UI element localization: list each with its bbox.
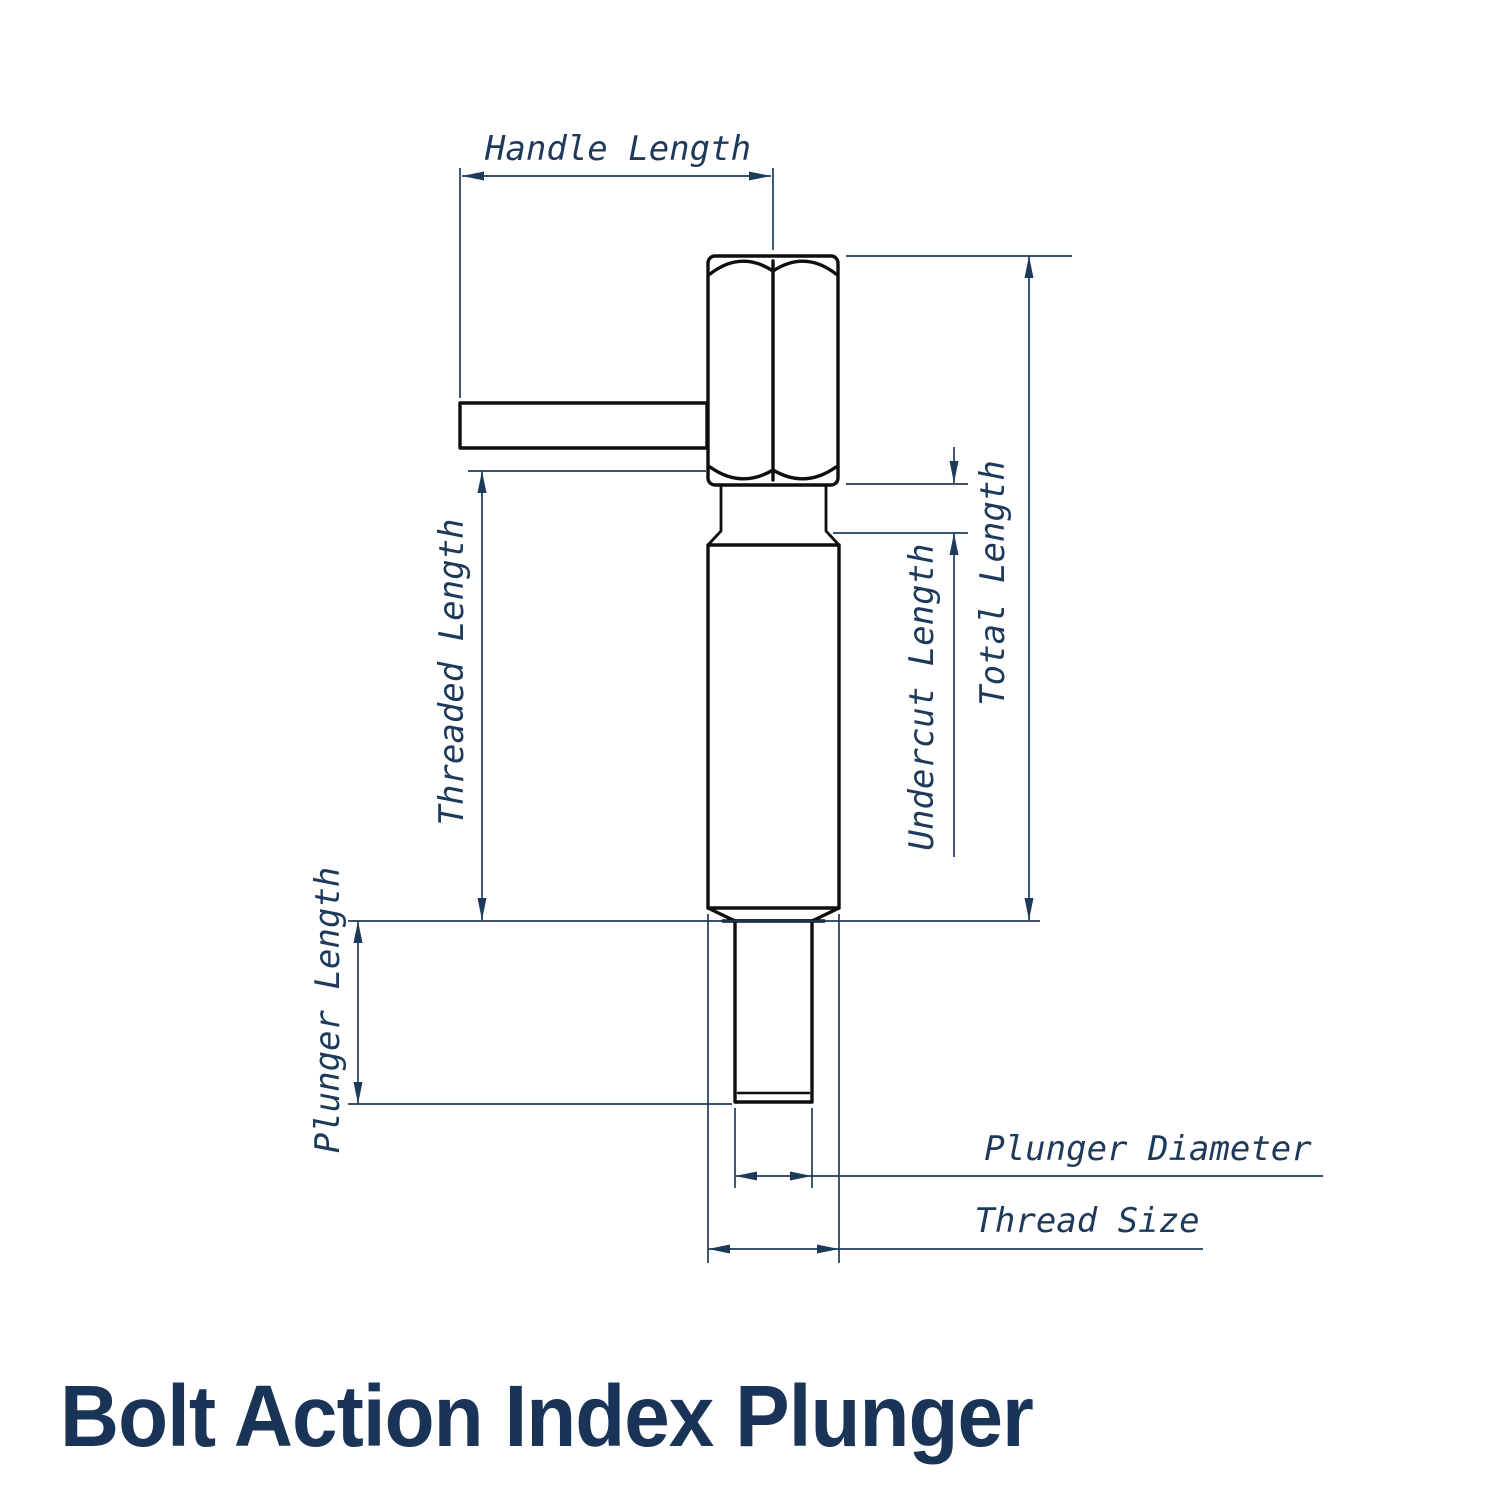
plunger-diameter-label: Plunger Diameter <box>984 1129 1312 1169</box>
arrowhead-down-icon <box>950 461 959 483</box>
drawing-canvas: Handle Length Threaded Length Plunger Le… <box>0 0 1500 1500</box>
handle-bar <box>460 403 707 448</box>
arrowhead-right-icon <box>817 1245 839 1254</box>
index-plunger-technical-drawing: Handle Length Threaded Length Plunger Le… <box>0 0 1500 1500</box>
plunger-pin <box>735 921 812 1102</box>
threaded-length-label: Threaded Length <box>432 518 472 825</box>
arrowhead-right-icon <box>790 1172 812 1181</box>
arrowhead-down-icon <box>354 1082 363 1104</box>
page-title: Bolt Action Index Plunger <box>60 1368 1033 1465</box>
arrowhead-up-icon <box>950 533 959 555</box>
arrowhead-up-icon <box>354 921 363 943</box>
threaded-body <box>708 545 839 908</box>
arrowhead-down-icon <box>1025 898 1034 920</box>
body-bottom-chamfer-left <box>708 908 735 921</box>
body-bottom-chamfer-right <box>812 908 839 921</box>
part-outline <box>460 256 839 1102</box>
arrowhead-left-icon <box>462 172 484 181</box>
arrowhead-left-icon <box>735 1172 757 1181</box>
arrowhead-left-icon <box>708 1245 730 1254</box>
arrowhead-right-icon <box>749 172 771 181</box>
undercut-neck-left-edge <box>708 486 721 545</box>
handle-length-label: Handle Length <box>484 129 751 169</box>
undercut-neck-right-edge <box>826 486 839 545</box>
arrowhead-up-icon <box>478 471 487 493</box>
plunger-length-label: Plunger Length <box>308 867 348 1154</box>
arrowhead-down-icon <box>478 898 487 920</box>
total-length-label: Total Length <box>973 460 1013 706</box>
undercut-length-label: Undercut Length <box>902 543 942 850</box>
thread-size-label: Thread Size <box>974 1201 1199 1241</box>
arrowhead-up-icon <box>1025 256 1034 278</box>
